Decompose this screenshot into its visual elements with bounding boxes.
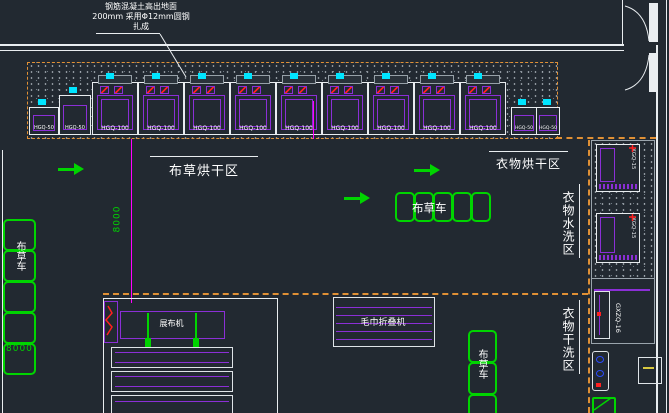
vent-duct [38, 99, 46, 105]
trolley [592, 351, 609, 391]
vent-duct [198, 73, 206, 79]
control-knob [114, 86, 123, 94]
control-knob [390, 86, 399, 94]
control-knob [330, 86, 339, 94]
dryer-door-inner [423, 99, 451, 127]
dryer-door-inner [377, 99, 405, 127]
dryer-model-label: HGQ-50 [537, 125, 559, 132]
dimension-text-vertical: 8000 [112, 206, 122, 233]
washer-model-label: XGQ-15 [630, 217, 636, 239]
vent-duct [290, 73, 298, 79]
machine-roller-line [115, 352, 229, 353]
dryer-model-label: HGQ-100 [369, 125, 413, 132]
vent-duct [543, 99, 551, 105]
dryer-unit: HGQ-50 [59, 95, 91, 135]
dryer-door-inner [147, 99, 175, 127]
dryer-unit: HGQ-100 [276, 82, 322, 135]
dryer-door-inner [239, 99, 267, 127]
washer-drum [600, 148, 615, 182]
zone-label-overline [489, 151, 568, 152]
room-wall-line [591, 140, 592, 343]
linen-cart [3, 312, 36, 344]
boundary-dashed-line [556, 137, 656, 139]
machine-roller-line [115, 362, 229, 363]
dryer-door-inner [193, 99, 221, 127]
top-wall-line-outer [0, 44, 624, 46]
arrow-shaft [58, 168, 74, 171]
control-knob [482, 86, 491, 94]
left-wall-line [2, 150, 3, 413]
room-wall-line [103, 298, 278, 299]
arrow-head [430, 164, 440, 176]
washer-base-hatch [599, 184, 637, 189]
vent-bracket [144, 75, 178, 84]
control-knob [238, 86, 247, 94]
machine-roller-line [115, 376, 229, 377]
construction-note: 钢筋混凝土高出地面 200mm 采用Φ12mm圆钢 扎成 [66, 2, 216, 32]
zone-label-dry-cleaning: 衣物干洗区 [560, 302, 577, 376]
cart-label-left: 布草车 [12, 241, 27, 311]
dryer-unit: HGQ-100 [322, 82, 368, 135]
dryer-door-inner [331, 99, 359, 127]
note-line-2: 200mm 采用Φ12mm圆钢 [66, 12, 216, 22]
cad-floorplan-canvas[interactable]: 钢筋混凝土高出地面 200mm 采用Φ12mm圆钢 扎成 HGQ-50 HGQ-… [0, 0, 669, 413]
dryer-model-label: HGQ-100 [415, 125, 459, 132]
flow-arrow-icon [414, 164, 440, 176]
flow-arrow-icon [344, 192, 370, 204]
control-knob [376, 86, 385, 94]
note-underline [96, 33, 160, 34]
note-line-1: 钢筋混凝土高出地面 [66, 2, 216, 12]
vent-duct [244, 73, 252, 79]
dryer-model-label: HGQ-100 [185, 125, 229, 132]
vent-bracket [328, 75, 362, 84]
vent-bracket [282, 75, 316, 84]
dryer-door-inner [469, 99, 497, 127]
zone-label-clothes-drying: 衣物烘干区 [489, 155, 568, 172]
dryer-model-label: HGQ-100 [323, 125, 367, 132]
cart-label-center: 布草车 [412, 200, 447, 216]
boundary-dashed-line [103, 293, 588, 295]
dryer-unit: HGQ-100 [414, 82, 460, 135]
blue-mark [596, 370, 604, 377]
red-mark [597, 312, 601, 316]
vent-bracket [236, 75, 270, 84]
arrow-head [360, 192, 370, 204]
dimension-line-vertical [131, 139, 132, 303]
control-knob [284, 86, 293, 94]
door-jamb-line [622, 0, 623, 46]
dry-cleaner-machine [594, 291, 610, 339]
arrow-shaft [344, 197, 360, 200]
dryer-model-label: HGQ-100 [461, 125, 505, 132]
zone-label-sideline [579, 300, 580, 374]
dryer-model-label: HGQ-50 [512, 125, 536, 132]
vent-duct [152, 73, 160, 79]
dryer-unit: HGQ-50 [536, 107, 560, 135]
dryer-model-label: HGQ-50 [30, 125, 58, 132]
feed-mark-foot [193, 338, 199, 347]
washer-machine: XGQ-15 [596, 144, 640, 192]
room-wall-line [277, 298, 278, 413]
dryer-unit: HGQ-50 [511, 107, 537, 135]
green-crate [592, 397, 616, 413]
washer-base-hatch [599, 255, 637, 260]
room-wall-line [654, 140, 655, 343]
yellow-mark [643, 367, 654, 369]
dryer-model-label: HGQ-100 [231, 125, 275, 132]
dryer-model-label: HGQ-100 [139, 125, 183, 132]
door-swing-arc [625, 55, 649, 90]
vent-duct [518, 99, 526, 105]
ironer-machine [111, 395, 233, 413]
vent-duct [474, 73, 482, 79]
control-knob [252, 86, 261, 94]
dryer-unit: HGQ-100 [230, 82, 276, 135]
wall-fixture-box [638, 357, 662, 384]
dryer-door-inner [101, 99, 129, 127]
control-knob [160, 86, 169, 94]
dryer-model-label: HGQ-100 [277, 125, 321, 132]
washer-machine: XGQ-15 [596, 213, 640, 263]
dry-cleaner-model-label: GXZQ-16 [614, 294, 622, 342]
flow-arrow-icon [58, 163, 84, 175]
note-line-3: 扎成 [66, 22, 216, 32]
control-knob [206, 86, 215, 94]
room-wall-line [591, 278, 655, 279]
electric-box [104, 301, 118, 343]
vent-bracket [466, 75, 500, 84]
dryer-unit: HGQ-100 [184, 82, 230, 135]
dryer-unit: HGQ-100 [138, 82, 184, 135]
ironer-machine [111, 371, 233, 392]
vent-bracket [374, 75, 408, 84]
control-knob [298, 86, 307, 94]
linen-cart [452, 192, 472, 222]
zone-label-clothes-washing: 衣物水洗区 [560, 186, 577, 260]
top-wall-line-inner [0, 50, 624, 51]
blue-mark [596, 356, 604, 363]
dryer-door-inner [285, 99, 313, 127]
spreader-machine-label: 展布机 [120, 318, 223, 329]
dryer-model-label: HGQ-100 [93, 125, 137, 132]
boundary-dashed-line [588, 140, 590, 413]
control-knob [146, 86, 155, 94]
door-leaf [649, 3, 658, 42]
washer-model-label: XGQ-15 [630, 148, 636, 170]
dryer-model-label: HGQ-50 [60, 125, 90, 132]
machine-roller-line [115, 401, 229, 402]
control-knob [100, 86, 109, 94]
door-swing-arc [625, 6, 649, 41]
vent-duct [106, 73, 114, 79]
cart-label-right: 布草车 [474, 349, 489, 411]
vent-bracket [98, 75, 132, 84]
vent-duct [336, 73, 344, 79]
arrow-shaft [414, 169, 430, 172]
dryer-unit: HGQ-50 [29, 107, 59, 135]
washer-drum [600, 217, 615, 253]
zone-label-overline [150, 156, 258, 157]
vent-duct [69, 87, 77, 93]
dimension-leader-line [313, 101, 314, 139]
room-wall-line [591, 140, 655, 141]
control-knob [192, 86, 201, 94]
vent-duct [428, 73, 436, 79]
control-knob [344, 86, 353, 94]
vent-bracket [190, 75, 224, 84]
zone-label-linen-drying: 布草烘干区 [150, 160, 258, 179]
control-knob [422, 86, 431, 94]
zone-label-sideline [579, 184, 580, 258]
dryer-unit: HGQ-100 [368, 82, 414, 135]
machine-roller-line [115, 386, 229, 387]
room-wall-line [591, 343, 655, 344]
dryer-unit: HGQ-100 [460, 82, 506, 135]
vent-bracket [420, 75, 454, 84]
towel-folder-label: 毛巾折叠机 [333, 315, 433, 328]
ironer-machine [111, 347, 233, 368]
vent-duct [382, 73, 390, 79]
arrow-head [74, 163, 84, 175]
right-wall-line-outer [666, 0, 667, 413]
linen-cart [3, 343, 36, 375]
control-knob [468, 86, 477, 94]
feed-mark-foot [145, 338, 151, 347]
linen-cart [471, 192, 491, 222]
red-mark [596, 383, 601, 387]
dryer-unit: HGQ-100 [92, 82, 138, 135]
control-knob [436, 86, 445, 94]
